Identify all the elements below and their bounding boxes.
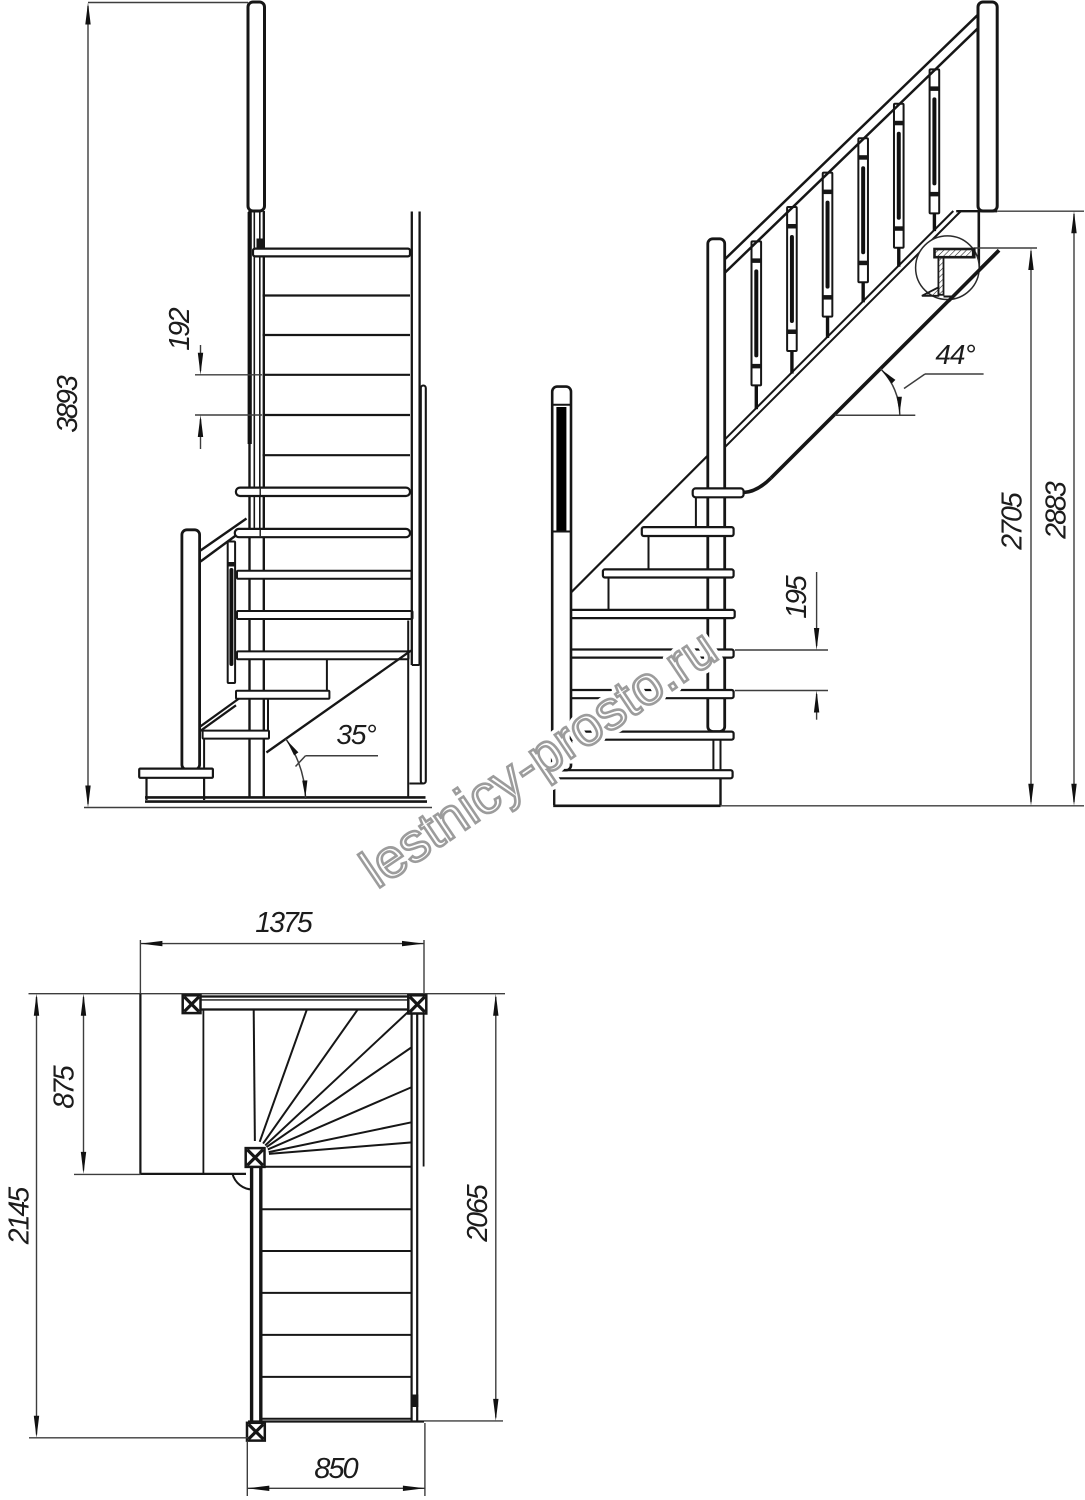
svg-text:192: 192 — [164, 307, 196, 351]
svg-text:35°: 35° — [336, 719, 376, 750]
svg-text:2145: 2145 — [4, 1187, 36, 1246]
svg-text:3893: 3893 — [52, 375, 84, 433]
svg-text:2883: 2883 — [1041, 481, 1073, 540]
svg-text:875: 875 — [49, 1065, 81, 1109]
svg-text:1375: 1375 — [255, 907, 313, 939]
svg-text:2705: 2705 — [997, 492, 1029, 551]
svg-text:850: 850 — [314, 1453, 358, 1485]
svg-text:44°: 44° — [935, 339, 975, 370]
svg-text:2065: 2065 — [462, 1184, 494, 1243]
svg-text:195: 195 — [781, 575, 813, 619]
